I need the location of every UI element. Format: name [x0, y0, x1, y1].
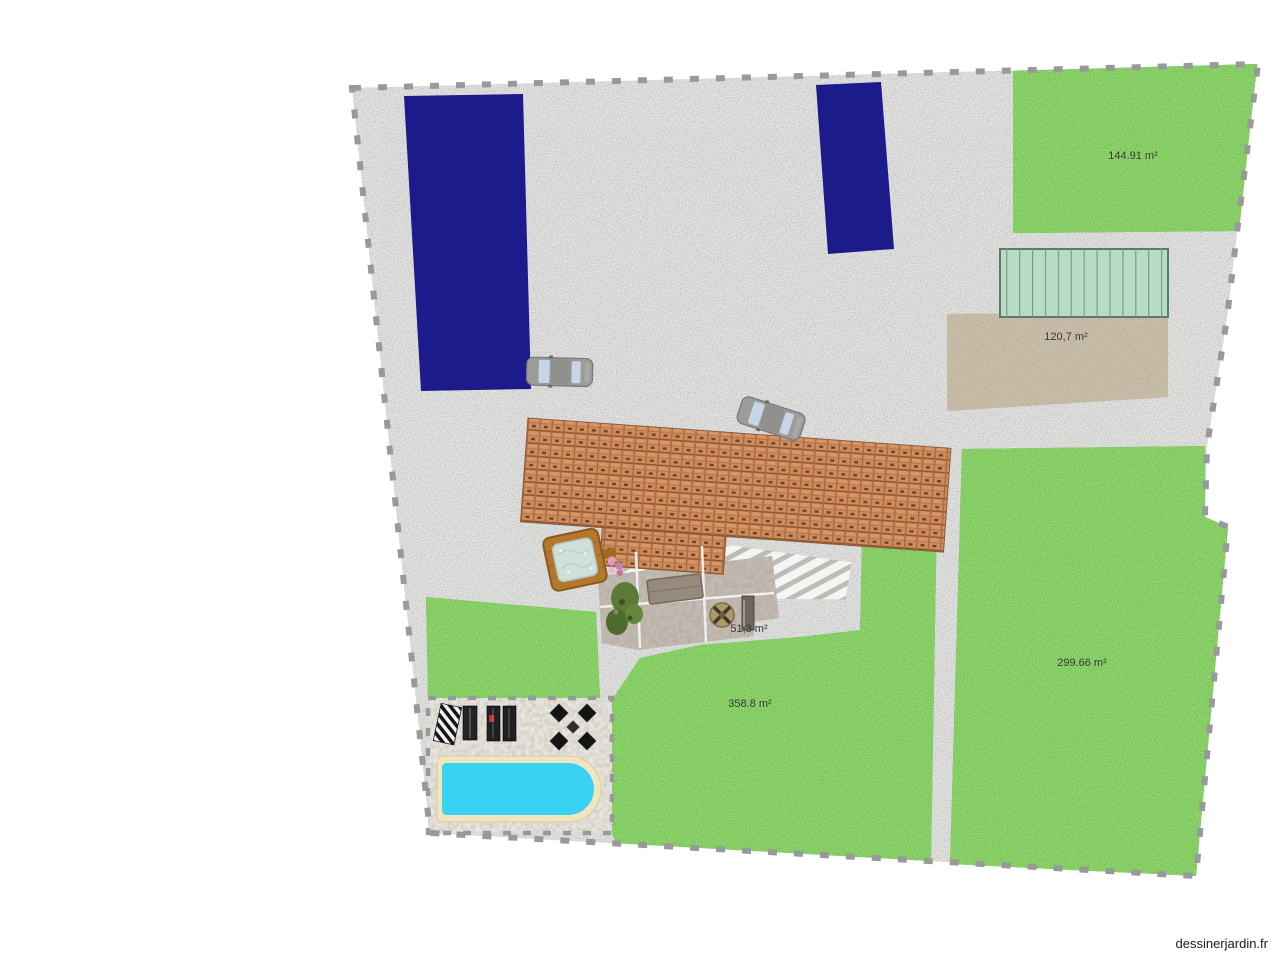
navy-rectangle-top[interactable]	[816, 82, 894, 254]
watermark: dessinerjardin.fr	[1176, 936, 1269, 951]
area-label-lawn-top-right: 144.91 m²	[1108, 150, 1158, 162]
area-label-patio: 51,3 m²	[730, 623, 768, 635]
garden-plan-canvas[interactable]: 144.91 m² 120,7 m² 51,3 m² 358.8 m² 299.…	[0, 0, 1280, 960]
swimming-pool[interactable]	[437, 756, 601, 822]
car-left[interactable]	[526, 355, 593, 389]
navy-rectangle-left[interactable]	[404, 94, 531, 391]
lawn-top-right[interactable]	[1008, 60, 1263, 238]
area-label-lawn-middle: 358.8 m²	[728, 698, 772, 710]
lounger-dark[interactable]	[463, 706, 477, 740]
area-label-terrace-brown: 120,7 m²	[1044, 331, 1088, 343]
carport-roof[interactable]	[1000, 249, 1168, 317]
garden-plan-page: 144.91 m² 120,7 m² 51,3 m² 358.8 m² 299.…	[0, 0, 1280, 960]
area-label-lawn-right: 299.66 m²	[1057, 657, 1107, 669]
